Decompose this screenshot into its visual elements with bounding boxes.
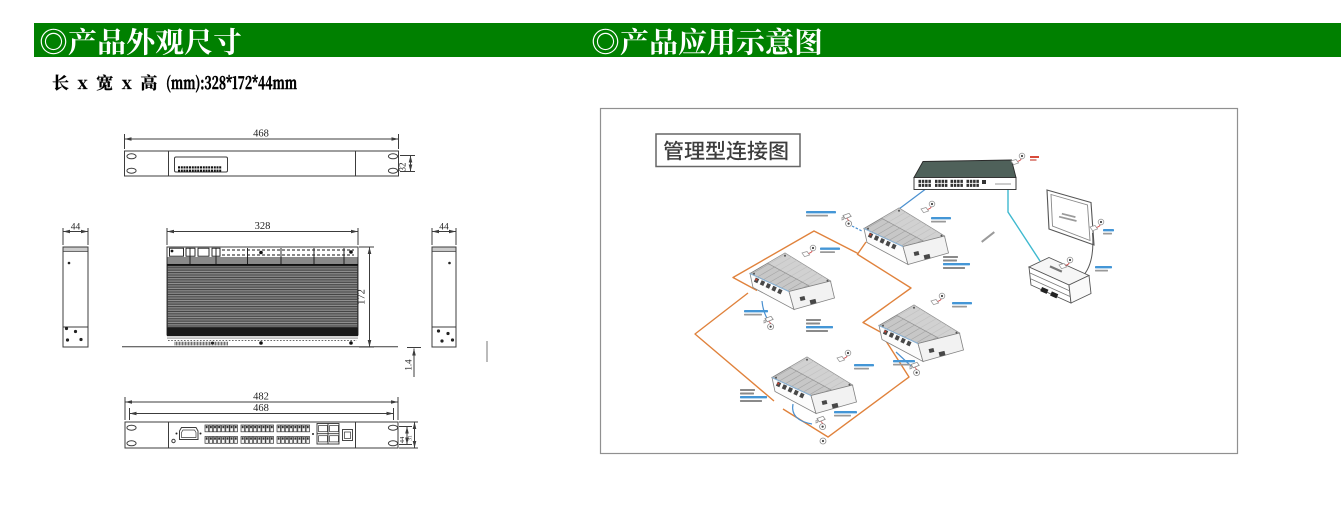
svg-text:44: 44 bbox=[399, 436, 406, 443]
svg-text:328: 328 bbox=[255, 221, 271, 232]
svg-text:44: 44 bbox=[71, 223, 81, 233]
svg-text:172: 172 bbox=[357, 289, 368, 305]
svg-text:482: 482 bbox=[253, 392, 269, 403]
svg-text:468: 468 bbox=[253, 403, 269, 414]
svg-text:44: 44 bbox=[439, 223, 449, 233]
svg-text:468: 468 bbox=[253, 129, 269, 140]
svg-text:32: 32 bbox=[398, 163, 408, 172]
svg-text:1.4: 1.4 bbox=[404, 359, 414, 371]
svg-text:31: 31 bbox=[408, 435, 414, 441]
